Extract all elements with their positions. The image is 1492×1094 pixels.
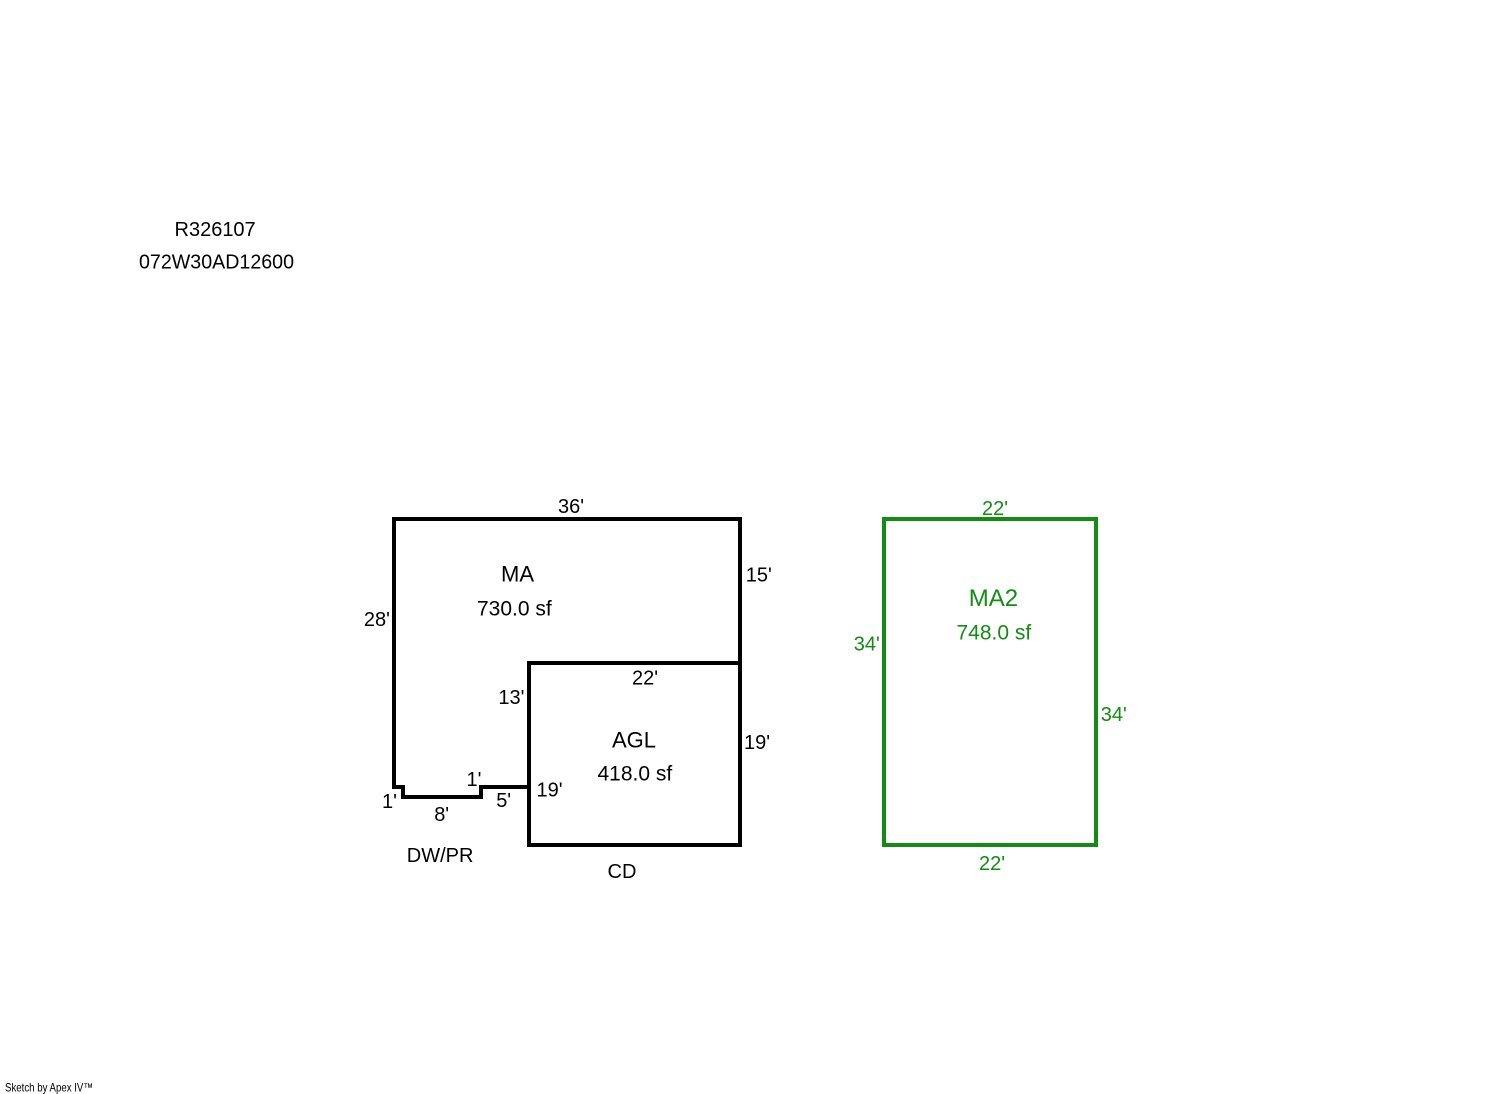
svg-text:730.0 sf: 730.0 sf bbox=[477, 598, 552, 621]
svg-text:AGL: AGL bbox=[612, 727, 656, 752]
svg-text:8': 8' bbox=[434, 804, 449, 826]
svg-text:1': 1' bbox=[382, 791, 397, 813]
svg-text:22': 22' bbox=[632, 667, 658, 689]
svg-text:MA2: MA2 bbox=[969, 585, 1018, 612]
svg-text:19': 19' bbox=[537, 779, 563, 801]
svg-text:34': 34' bbox=[854, 633, 880, 655]
svg-text:DW/PR: DW/PR bbox=[407, 845, 474, 867]
svg-text:22': 22' bbox=[979, 853, 1005, 875]
svg-text:Sketch by Apex IV™: Sketch by Apex IV™ bbox=[5, 1081, 93, 1094]
svg-text:MA: MA bbox=[501, 562, 534, 587]
svg-text:R326107: R326107 bbox=[175, 219, 256, 241]
svg-text:418.0 sf: 418.0 sf bbox=[598, 763, 673, 786]
svg-text:28': 28' bbox=[364, 609, 390, 631]
svg-text:22': 22' bbox=[982, 498, 1008, 520]
svg-text:1': 1' bbox=[467, 769, 482, 791]
svg-text:15': 15' bbox=[746, 564, 772, 586]
svg-text:748.0 sf: 748.0 sf bbox=[957, 621, 1032, 644]
svg-text:36': 36' bbox=[558, 496, 584, 518]
svg-text:34': 34' bbox=[1101, 704, 1127, 726]
svg-text:CD: CD bbox=[608, 861, 637, 883]
svg-text:5': 5' bbox=[496, 790, 511, 812]
svg-text:19': 19' bbox=[744, 732, 770, 754]
svg-text:072W30AD12600: 072W30AD12600 bbox=[139, 251, 294, 273]
svg-text:13': 13' bbox=[498, 687, 524, 709]
